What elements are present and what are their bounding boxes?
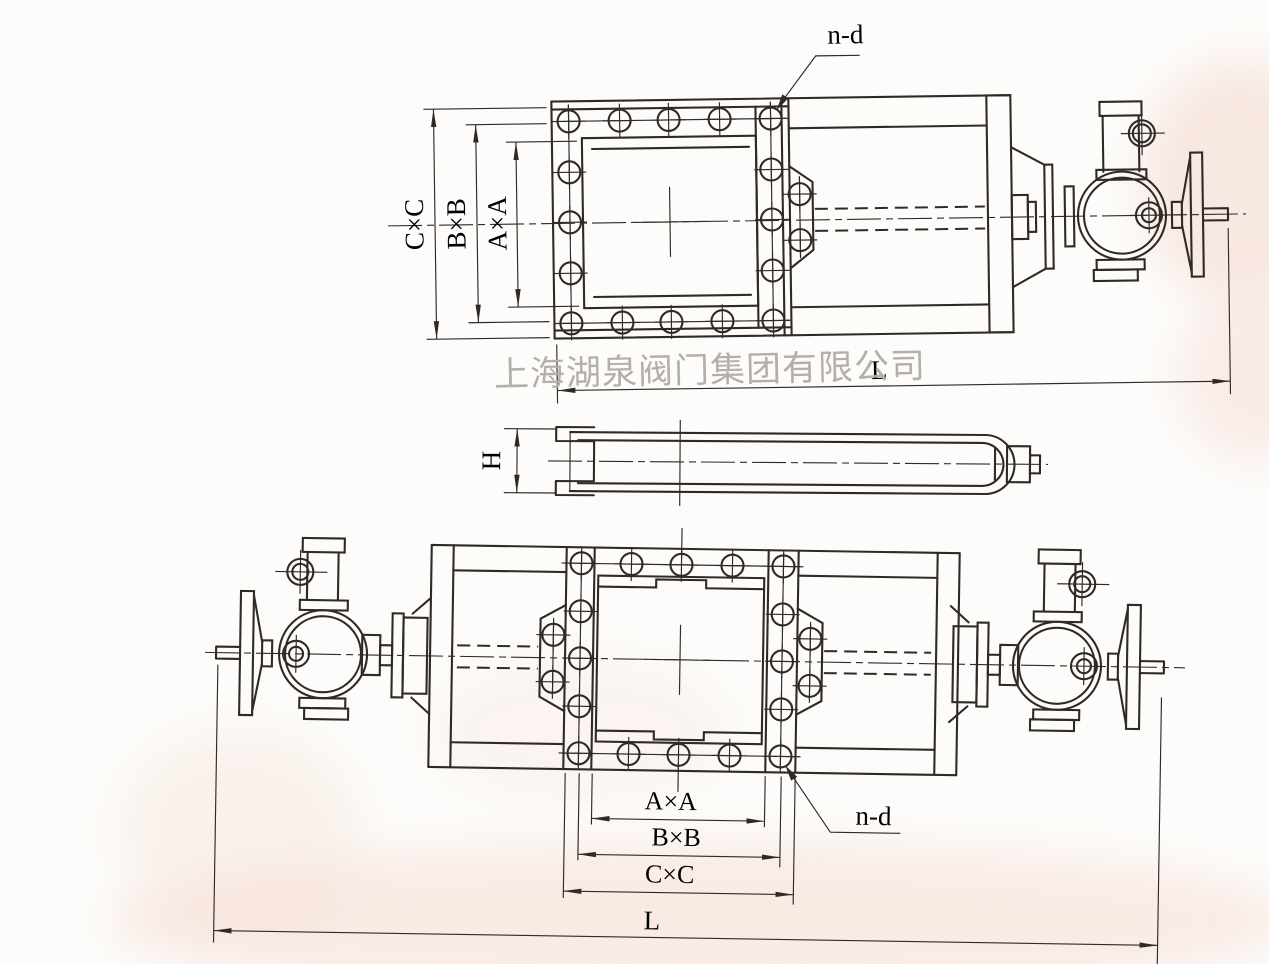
valve-drawing-svg: C×C B×B A×A n-d	[0, 0, 1269, 964]
yoke-and-gearbox	[986, 93, 1183, 333]
label-axa-bottom: A×A	[644, 786, 697, 816]
valve-centerline-bottom	[205, 652, 1185, 667]
scanned-drawing-page: C×C B×B A×A n-d	[0, 0, 1269, 964]
plan-view: H	[476, 418, 1048, 508]
company-watermark: 上海湖泉阀门集团有限公司	[494, 346, 927, 395]
gear-operator-right	[949, 548, 1166, 732]
front-view-top: C×C B×B A×A n-d	[385, 14, 1248, 406]
dimension-h: H	[476, 428, 556, 493]
front-view-bottom: A×A B×B C×C n-d	[200, 520, 1187, 964]
label-nd-top: n-d	[827, 19, 864, 50]
label-h: H	[476, 451, 506, 471]
gear-operator-left	[215, 537, 432, 721]
plan-body	[556, 427, 1040, 498]
label-axa-top: A×A	[482, 196, 513, 251]
label-l-bottom: L	[643, 905, 660, 935]
label-nd-bottom: n-d	[855, 801, 892, 832]
label-bxb-top: B×B	[441, 198, 472, 250]
label-bxb-bottom: B×B	[651, 822, 701, 852]
plan-gate-axis	[680, 420, 681, 506]
bolt-callout-bottom: n-d	[784, 766, 901, 834]
gland-bracket	[782, 166, 817, 268]
plan-centerline	[548, 461, 1048, 464]
label-cxc-bottom: C×C	[645, 859, 695, 889]
label-cxc-top: C×C	[399, 199, 430, 251]
drawing-root: C×C B×B A×A n-d	[200, 14, 1248, 964]
